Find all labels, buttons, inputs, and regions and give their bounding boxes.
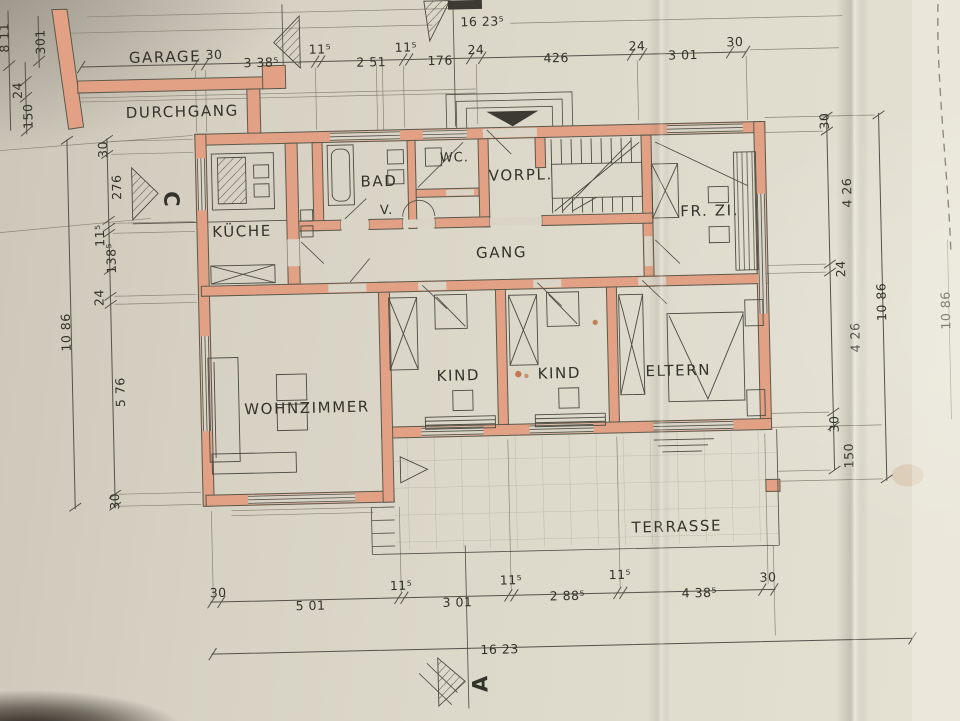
terrace xyxy=(370,429,780,554)
dim-bottom-1: 5 01 xyxy=(295,598,325,614)
dim-left-total: 10 86 xyxy=(58,313,74,352)
room-label-garage: GARAGE xyxy=(129,47,202,67)
dim-left-6: 30 xyxy=(107,493,122,510)
dim-top-5: 24 xyxy=(467,42,484,57)
section-label-a: A xyxy=(468,675,492,693)
room-label-wohnzimmer: WOHNZIMMER xyxy=(244,398,370,419)
dim-bottom-8: 30 xyxy=(759,569,776,584)
room-label-kind1: KIND xyxy=(436,366,480,385)
wall-corridor-south xyxy=(201,273,768,296)
room-label-gang: GANG xyxy=(476,243,528,262)
room-label-wc: WC. xyxy=(440,150,469,166)
dim-left-3: 138⁵ xyxy=(103,243,119,274)
dim-bottom-4: 11⁵ xyxy=(500,572,523,588)
section-a-top-marker-icon xyxy=(424,1,451,42)
paper-fold xyxy=(836,0,868,721)
dim-left-0: 30 xyxy=(95,141,110,158)
section-c-marker-icon xyxy=(132,167,159,220)
entrance-porch xyxy=(446,92,573,129)
floor-plan-photo: GARAGE 30 DURCHGANG KÜCHE BAD WC. V. VOR… xyxy=(0,0,960,721)
dim-bottom-3: 3 01 xyxy=(442,594,472,610)
paper-crease xyxy=(648,0,670,721)
dim-top-4: 176 xyxy=(427,53,453,69)
room-label-vorplatz: VORPL. xyxy=(489,165,553,184)
room-label-kind2: KIND xyxy=(537,364,581,383)
cropped-label-blob xyxy=(448,0,482,10)
labels: GARAGE 30 DURCHGANG KÜCHE BAD WC. V. VOR… xyxy=(0,1,960,702)
dim-left-garage-3: 150 xyxy=(20,103,36,129)
room-label-terrasse: TERRASSE xyxy=(630,517,722,537)
plan-group: GARAGE 30 DURCHGANG KÜCHE BAD WC. V. VOR… xyxy=(0,0,960,719)
dim-left-garage-2: 24 xyxy=(10,82,25,99)
dim-garage: 30 xyxy=(205,47,222,62)
dim-bottom-2: 11⁵ xyxy=(390,578,413,594)
dim-bottom-6: 11⁵ xyxy=(609,567,632,583)
dim-top-8: 3 01 xyxy=(668,47,698,63)
dim-right-total: 10 86 xyxy=(873,283,889,322)
dim-top-0: 3 38⁵ xyxy=(243,54,279,70)
room-label-vestibule: V. xyxy=(380,203,394,218)
section-label-c: C xyxy=(159,191,183,207)
dim-top-7: 24 xyxy=(628,38,645,53)
dim-left-1: 276 xyxy=(109,174,125,200)
room-label-kueche: KÜCHE xyxy=(212,221,272,241)
dim-left-garage-0: 8 11 xyxy=(0,23,12,53)
room-label-fremdenzimmer: FR. ZI. xyxy=(680,201,739,220)
floor-plan-drawing: GARAGE 30 DURCHGANG KÜCHE BAD WC. V. VOR… xyxy=(0,0,960,721)
dim-top-6: 426 xyxy=(543,50,569,66)
dim-left-garage-1: 301 xyxy=(32,29,48,55)
room-label-durchgang: DURCHGANG xyxy=(126,101,239,122)
dim-right-0: 30 xyxy=(816,113,831,130)
under-sheet xyxy=(912,0,960,721)
dim-top-2: 2 51 xyxy=(356,54,386,70)
entrance-arrow-icon xyxy=(486,111,538,127)
dimension-lines xyxy=(2,0,917,665)
dim-bottom-0: 30 xyxy=(210,585,227,600)
door-openings xyxy=(285,125,667,294)
dim-bottom-5: 2 88⁵ xyxy=(550,588,586,604)
dim-top-1: 11⁵ xyxy=(309,41,332,57)
dim-top-9: 30 xyxy=(726,34,743,49)
construction-guide-lines xyxy=(0,0,956,653)
room-label-bad: BAD xyxy=(360,172,397,191)
dim-top-total: 16 23⁵ xyxy=(460,13,504,29)
garage-wall-west xyxy=(52,9,84,130)
section-a-bottom-marker-icon xyxy=(438,657,466,706)
table-shadow-corner xyxy=(0,690,183,721)
dim-bottom-7: 4 38⁵ xyxy=(681,585,717,601)
dim-left-4: 24 xyxy=(91,289,106,306)
dim-left-5: 5 76 xyxy=(112,377,128,407)
dim-bottom-total: 16 23 xyxy=(480,641,519,657)
staircase xyxy=(551,137,643,213)
dim-top-3: 11⁵ xyxy=(395,39,418,55)
